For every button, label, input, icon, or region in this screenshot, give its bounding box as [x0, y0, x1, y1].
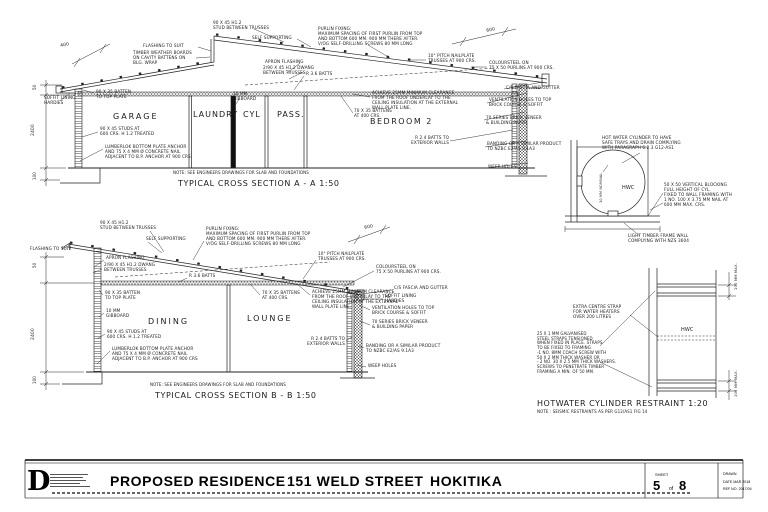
room-label-cyl: CYL: [243, 110, 261, 119]
note-stud-trusses-b: 90 X 45 H1.2 STUD BETWEEN TRUSSES: [100, 221, 156, 231]
note-self-supporting: SELF SUPPORTING: [252, 36, 292, 41]
note-lumberlok: LUMBERLOK BOTTOM PLATE ANCHOR AND 75 X 4…: [105, 145, 191, 160]
note-ventilation: VENTILATION HOLES TO TOP BRICK COURSE & …: [489, 98, 551, 108]
dim-2400: 2400: [31, 124, 36, 136]
note-lumberlok-b: LUMBERLOK BOTTOM PLATE ANCHOR AND 75 X 4…: [112, 347, 198, 362]
note-nailplate-trusses-b: 10° PITCH NAILPLATE TRUSSES AT 900 CRS.: [318, 252, 366, 262]
dim-600-b: 600: [364, 224, 374, 231]
dim-600: 600: [486, 27, 496, 34]
section-a-note: NOTE: SEE ENGINEERS DRAWINGS FOR SLAB AN…: [173, 171, 309, 176]
company-info-microtext: [50, 474, 88, 475]
room-label-dining: DINING: [148, 317, 189, 326]
note-batten-top-plate: 90 X 35 BATTEN TO TOP PLATE: [96, 90, 131, 100]
room-label-garage: GARAGE: [113, 112, 159, 121]
room-label-lounge: LOUNGE: [247, 314, 293, 323]
note-brick-veneer: 70 SERIES BRICK VENEER & BUILDING PAPER: [486, 116, 542, 126]
project-city: HOKITIKA: [430, 473, 502, 489]
note-purlin-fixing-b: PURLIN FIXING: MAXIMUM SPACING OF FIRST …: [206, 227, 310, 247]
note-gibboard: 10 MM GIBBOARD: [233, 92, 256, 102]
note-wall-batts-b: R 2.4 BATTS TO EXTERIOR WALLS: [303, 337, 345, 347]
restraint-note: NOTE : SEISMIC RESTRAINTS AS PER G12/AS1…: [537, 410, 647, 415]
note-fascia-b: C/S FASCIA AND GUTTER: [394, 286, 448, 291]
sheet-number: 5: [653, 478, 660, 493]
dim-50: 50: [33, 85, 38, 90]
room-label-pass: PASS.: [277, 110, 304, 119]
note-flashing-b: FLASHING TO SUIT: [30, 247, 71, 252]
note-studs-b: 90 X 45 STUDS AT 600 CRS. H 1.2 TREATED: [107, 330, 161, 340]
note-straps: 25 X 1 MM GALVANISED STEEL STRAPS TENSIO…: [537, 332, 616, 374]
dim-2400-b: 2400: [31, 328, 36, 340]
note-ceiling-batts-b: R 3.6 BATTS: [189, 274, 215, 279]
note-ltf-wall: LIGHT TIMBER FRAME WALL COMPLYING WITH N…: [628, 234, 689, 244]
annotation-layer: 400FLASHING TO SUITTIMBER WEATHER BOARDS…: [0, 0, 768, 512]
note-gibboard-b: 10 MM GIBBOARD: [106, 309, 129, 319]
note-coloursteel: COLOURSTEEL ON 75 X 50 PURLINS AT 900 CR…: [489, 61, 554, 71]
note-flashing: FLASHING TO SUIT: [143, 44, 184, 49]
disclaimer-microtext: [52, 492, 692, 494]
drawn-label: DRAWN: [723, 472, 736, 476]
note-apron-flashing-b: APRON FLASHING: [106, 256, 145, 261]
note-blocking: 50 X 50 VERTICAL BLOCKING FULL HEIGHT OF…: [664, 183, 732, 208]
section-b-title: TYPICAL CROSS SECTION B - B 1:50: [155, 391, 317, 400]
sheet-of-label: of: [669, 486, 673, 492]
sheet-label: SHEET: [655, 472, 668, 477]
note-self-supporting-b: SELF SUPPORTING: [146, 237, 186, 242]
note-purlin-fixing: PURLIN FIXING: MAXIMUM SPACING OF FIRST …: [318, 27, 422, 47]
note-weep-holes-b: WEEP HOLES: [368, 364, 396, 369]
dim-100-b: 100: [33, 376, 38, 384]
drawing-sheet: 400FLASHING TO SUITTIMBER WEATHER BOARDS…: [0, 0, 768, 512]
section-a-title: TYPICAL CROSS SECTION A - A 1:50: [178, 179, 340, 188]
note-clearance-b: ACHIEVE 25MM MINIMUM CLEARANCE FROM THE …: [312, 290, 398, 310]
company-info-microtext: [50, 480, 86, 481]
company-info-microtext: [50, 477, 83, 478]
note-banding-b: BANDING OR A SIMILAR PRODUCT TO NZBC E2/…: [366, 344, 440, 354]
room-label-bedroom2: BEDROOM 2: [370, 117, 433, 126]
dim-50-b: 50: [33, 263, 38, 268]
note-centre-strap: EXTRA CENTRE STRAP FOR WATER HEATERS OVE…: [573, 305, 621, 320]
dim-100: 100: [33, 172, 38, 180]
note-fascia: C/S FASCIA AND GUTTER: [506, 86, 560, 91]
note-weep-holes: WEEP HOLES: [488, 165, 516, 170]
note-banding: BANDING OR A SIMILAR PRODUCT TO NZBC E2/…: [487, 142, 561, 152]
project-street: 151 WELD STREET: [287, 473, 424, 489]
dim-100max-top: 100 MM MAX.: [734, 263, 738, 290]
note-dwang-b: 2/90 X 45 H1.2 DWANG BETWEEN TRUSSES: [104, 263, 155, 273]
note-nominal-gap: 10 MM NOMINAL: [599, 173, 603, 203]
hwc-label: HWC: [622, 186, 635, 192]
note-brick-veneer-b: 70 SERIES BRICK VENEER & BUILDING PAPER: [372, 320, 428, 330]
note-coloursteel-b: COLOURSTEEL ON 75 X 50 PURLINS AT 900 CR…: [376, 265, 441, 275]
section-b-note: NOTE: SEE ENGINEERS DRAWINGS FOR SLAB AN…: [150, 383, 286, 388]
note-soffit-lining: SOFFIT LINING HARDIES: [44, 96, 76, 106]
note-clearance: ACHIEVE 25MM MINIMUM CLEARANCE FROM THE …: [372, 91, 458, 111]
note-hwc-tray: HOT WATER CYLINDER TO HAVE SAFE TRAYS AN…: [602, 136, 681, 151]
note-batten-top-plate-b: 90 X 35 BATTEN TO TOP PLATE: [105, 291, 140, 301]
date-label: DATE MAR 2018: [723, 480, 750, 484]
dim-100max-bottom: 100 MM MAX.: [734, 370, 738, 397]
note-wall-batts: R 2.4 BATTS TO EXTERIOR WALLS: [411, 136, 449, 146]
note-ceiling-batts: R 3.6 BATTS: [306, 72, 332, 77]
firm-logo: D: [27, 468, 50, 495]
company-info-microtext: [50, 486, 90, 487]
note-ceiling-battens-b: 70 X 35 BATTENS AT 400 CRS.: [262, 291, 300, 301]
note-nailplate-trusses: 10° PITCH NAILPLATE TRUSSES AT 900 CRS.: [428, 54, 476, 64]
note-stud-trusses: 90 X 45 H1.2 STUD BETWEEN TRUSSES: [213, 21, 269, 31]
hwc-label-2: HWC: [681, 328, 694, 334]
note-weatherboards: TIMBER WEATHER BOARDS ON CAVITY BATTENS …: [133, 51, 192, 66]
note-studs: 90 X 45 STUDS AT 600 CRS. H 1.2 TREATED: [100, 127, 154, 137]
project-title: PROPOSED RESIDENCE: [110, 473, 286, 489]
dim-400: 400: [60, 42, 70, 49]
company-info-microtext: [50, 483, 80, 484]
room-label-laundry: LAUNDRY: [193, 110, 238, 119]
sheet-total: 8: [679, 478, 686, 493]
restraint-title: HOTWATER CYLINDER RESTRAINT 1:20: [537, 399, 708, 408]
ref-label: REF NO. 2017/04: [723, 487, 752, 491]
